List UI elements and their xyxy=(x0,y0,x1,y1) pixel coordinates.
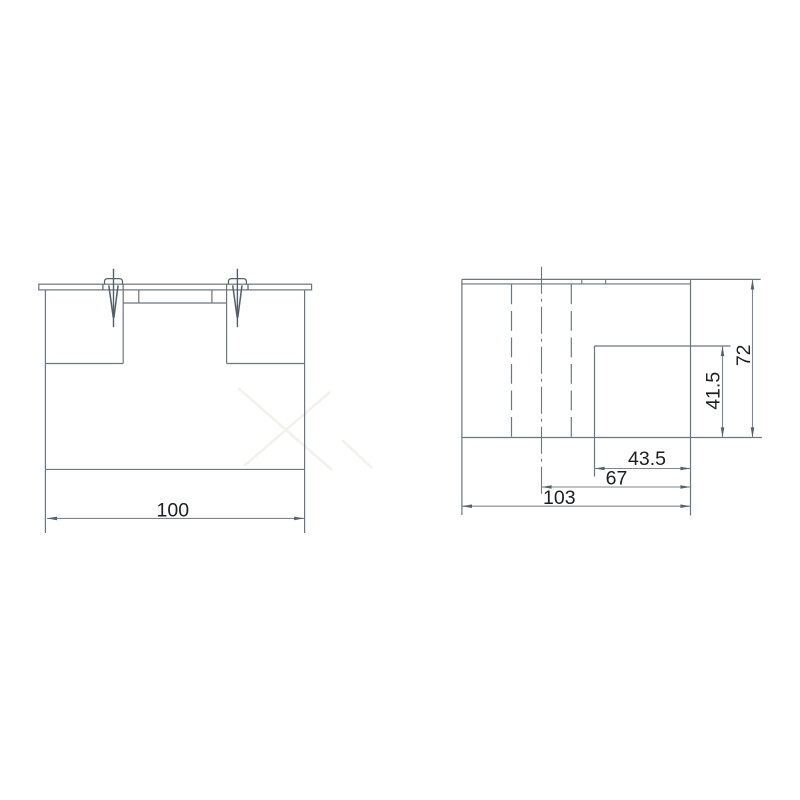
svg-text:103: 103 xyxy=(543,487,576,509)
svg-text:41.5: 41.5 xyxy=(703,372,725,410)
svg-text:72: 72 xyxy=(733,344,755,366)
svg-text:100: 100 xyxy=(157,499,190,521)
svg-text:43.5: 43.5 xyxy=(628,448,666,470)
svg-text:67: 67 xyxy=(606,467,628,489)
